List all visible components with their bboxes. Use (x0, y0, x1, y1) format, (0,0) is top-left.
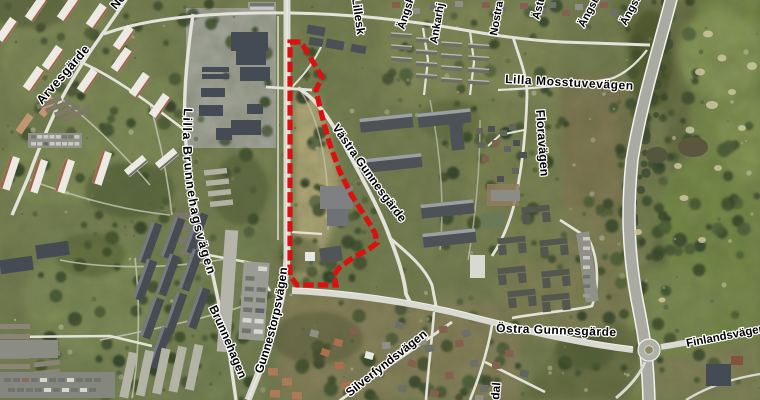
svg-text:dal: dal (488, 382, 503, 400)
